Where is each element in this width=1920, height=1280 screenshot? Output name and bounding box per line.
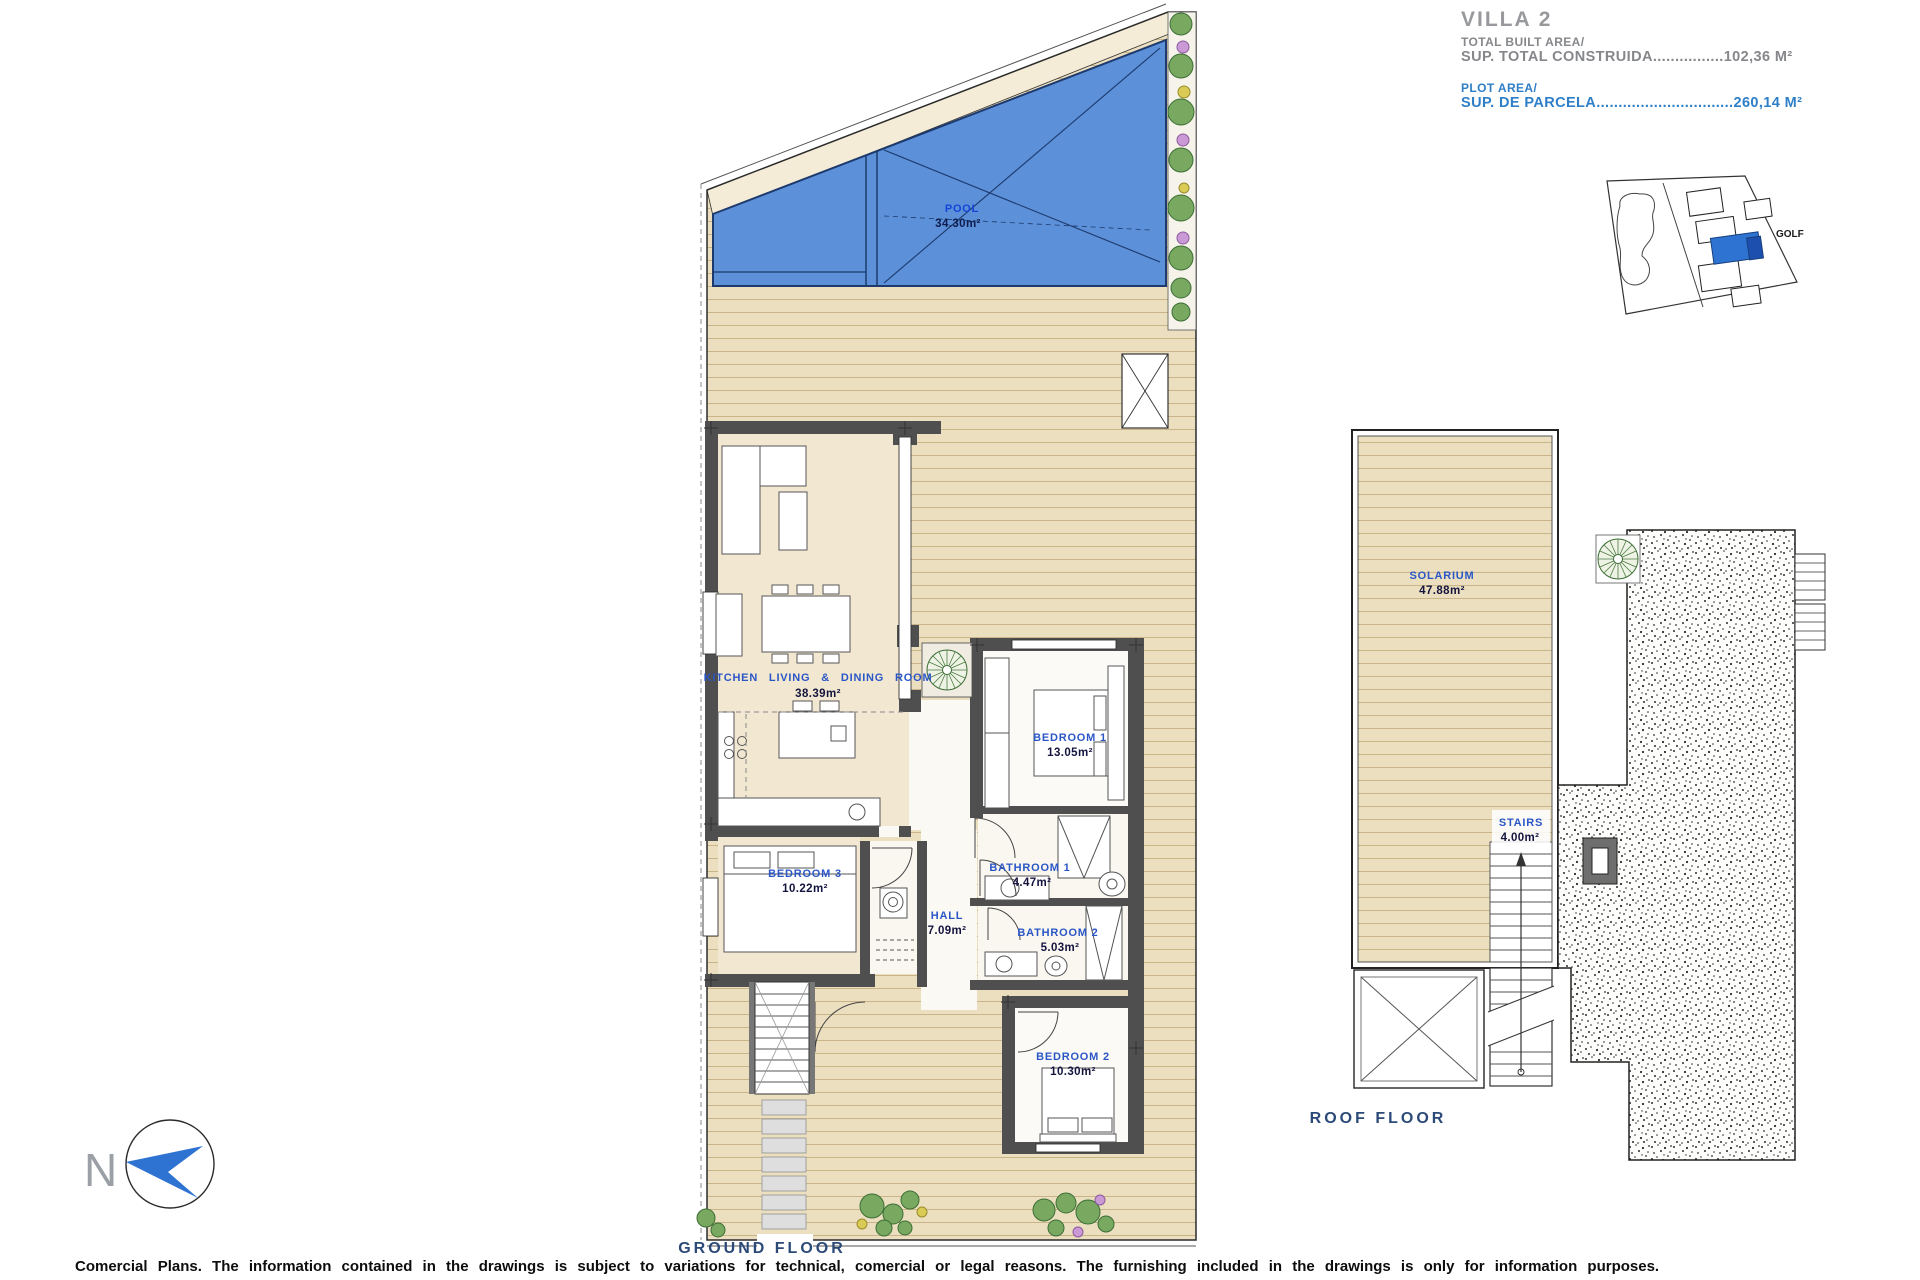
bar-stool <box>793 701 812 711</box>
bathroom1-area: 4.47m² <box>1013 877 1052 889</box>
bathroom1-label: BATHROOM 1 <box>989 862 1070 874</box>
bed3-pillow <box>778 852 814 868</box>
bed1-pillow <box>1094 742 1106 776</box>
ground-floor-plan: POOL 34.30m² KITCHEN LIVING & DINING ROO… <box>678 4 1196 1257</box>
roof-floor-plan: SOLARIUM 47.88m² STAIRS 4.00m² ROOF FLOO… <box>1310 430 1825 1160</box>
living-glass-wall <box>899 437 911 699</box>
bed1-headboard <box>1108 666 1124 800</box>
site-location-map: GOLF <box>1607 176 1804 314</box>
deck-planter <box>922 643 972 697</box>
shower2 <box>1086 906 1122 980</box>
sofa <box>722 446 760 554</box>
bed2-pillow <box>1082 1118 1112 1132</box>
plot-area-leader: ............................... <box>1596 95 1733 111</box>
built-area-value: 102,36 M² <box>1724 49 1793 65</box>
bedroom2-furniture <box>1040 1068 1116 1142</box>
built-area-leader: ................ <box>1653 49 1724 65</box>
north-arrow: N <box>84 1120 214 1208</box>
plot-area-label-es: SUP. DE PARCELA <box>1461 95 1596 111</box>
pool-area: 34.30m² <box>935 218 981 230</box>
dining-chair <box>823 654 839 663</box>
dining-chair <box>823 585 839 594</box>
sideboard <box>716 594 742 656</box>
kitchen-counter-bottom <box>718 798 880 826</box>
roof-floor-caption: ROOF FLOOR <box>1310 1110 1447 1127</box>
title-block: VILLA 2 TOTAL BUILT AREA/ SUP. TOTAL CON… <box>1461 8 1861 111</box>
kitchen-area: 38.39m² <box>795 688 841 700</box>
bathroom2-area: 5.03m² <box>1041 942 1080 954</box>
bar-stool <box>820 701 839 711</box>
bed3-pillow <box>734 852 770 868</box>
villa-title: VILLA 2 <box>1461 8 1861 32</box>
ac-units <box>1795 554 1825 650</box>
bedroom3-furniture <box>724 846 856 952</box>
bedroom1-window <box>1012 640 1116 649</box>
solarium-area: 47.88m² <box>1419 585 1465 597</box>
dining-chair <box>772 585 788 594</box>
disclaimer: Comercial Plans. The information contain… <box>75 1258 1595 1275</box>
built-area-label-en: TOTAL BUILT AREA/ <box>1461 35 1861 49</box>
dining-chair <box>772 654 788 663</box>
dining-table <box>762 596 850 652</box>
dining-chair <box>797 585 813 594</box>
golf-label: GOLF <box>1776 229 1804 240</box>
bed2-pillow <box>1048 1118 1078 1132</box>
stairs-label: STAIRS <box>1499 817 1543 829</box>
plot-area-line: SUP. DE PARCELA.........................… <box>1461 95 1861 111</box>
floor-plan-canvas: POOL 34.30m² KITCHEN LIVING & DINING ROO… <box>0 0 1920 1280</box>
plot-area-label-en: PLOT AREA/ <box>1461 81 1861 95</box>
sofa-chaise <box>760 446 806 486</box>
bedroom3-window <box>703 878 718 936</box>
bedroom3-label: BEDROOM 3 <box>768 868 842 880</box>
basin2 <box>996 956 1012 972</box>
hall-label: HALL <box>931 910 964 922</box>
built-area-label-es: SUP. TOTAL CONSTRUIDA <box>1461 49 1653 65</box>
plot-area-value: 260,14 M² <box>1733 95 1802 111</box>
stairs-area: 4.00m² <box>1501 832 1540 844</box>
bedroom2-window <box>1036 1144 1100 1152</box>
living-hall-door-gap <box>879 826 899 837</box>
roof-vent <box>1583 838 1617 884</box>
solarium-label: SOLARIUM <box>1409 570 1474 582</box>
bedroom1-area: 13.05m² <box>1047 747 1093 759</box>
golf-course-outline <box>1617 194 1654 285</box>
bedroom3-area: 10.22m² <box>782 883 828 895</box>
tv-unit <box>779 492 807 550</box>
roof-planter <box>1596 535 1640 583</box>
hedge-strip <box>1168 12 1196 330</box>
dining-chair <box>797 654 813 663</box>
porch-floor <box>909 700 975 830</box>
entrance-stairs <box>749 982 815 1094</box>
ground-floor-caption: GROUND FLOOR <box>678 1240 846 1257</box>
bathroom2-label: BATHROOM 2 <box>1017 927 1098 939</box>
roof-pergola <box>1354 970 1484 1088</box>
north-letter: N <box>84 1144 117 1196</box>
bedroom1-label: BEDROOM 1 <box>1033 732 1107 744</box>
bedroom2-area: 10.30m² <box>1050 1066 1096 1078</box>
hall-area: 7.09m² <box>928 925 967 937</box>
pool-label: POOL <box>945 203 979 215</box>
island-sink <box>831 726 846 741</box>
kitchen-label: KITCHEN LIVING & DINING ROOM <box>704 672 933 684</box>
bedroom2-label: BEDROOM 2 <box>1036 1051 1110 1063</box>
outdoor-shower <box>1122 354 1168 428</box>
built-area-line: SUP. TOTAL CONSTRUIDA................102… <box>1461 49 1861 65</box>
bed2-headboard <box>1040 1134 1116 1142</box>
kitchen-counter-left <box>718 712 734 800</box>
bed1-pillow <box>1094 696 1106 730</box>
